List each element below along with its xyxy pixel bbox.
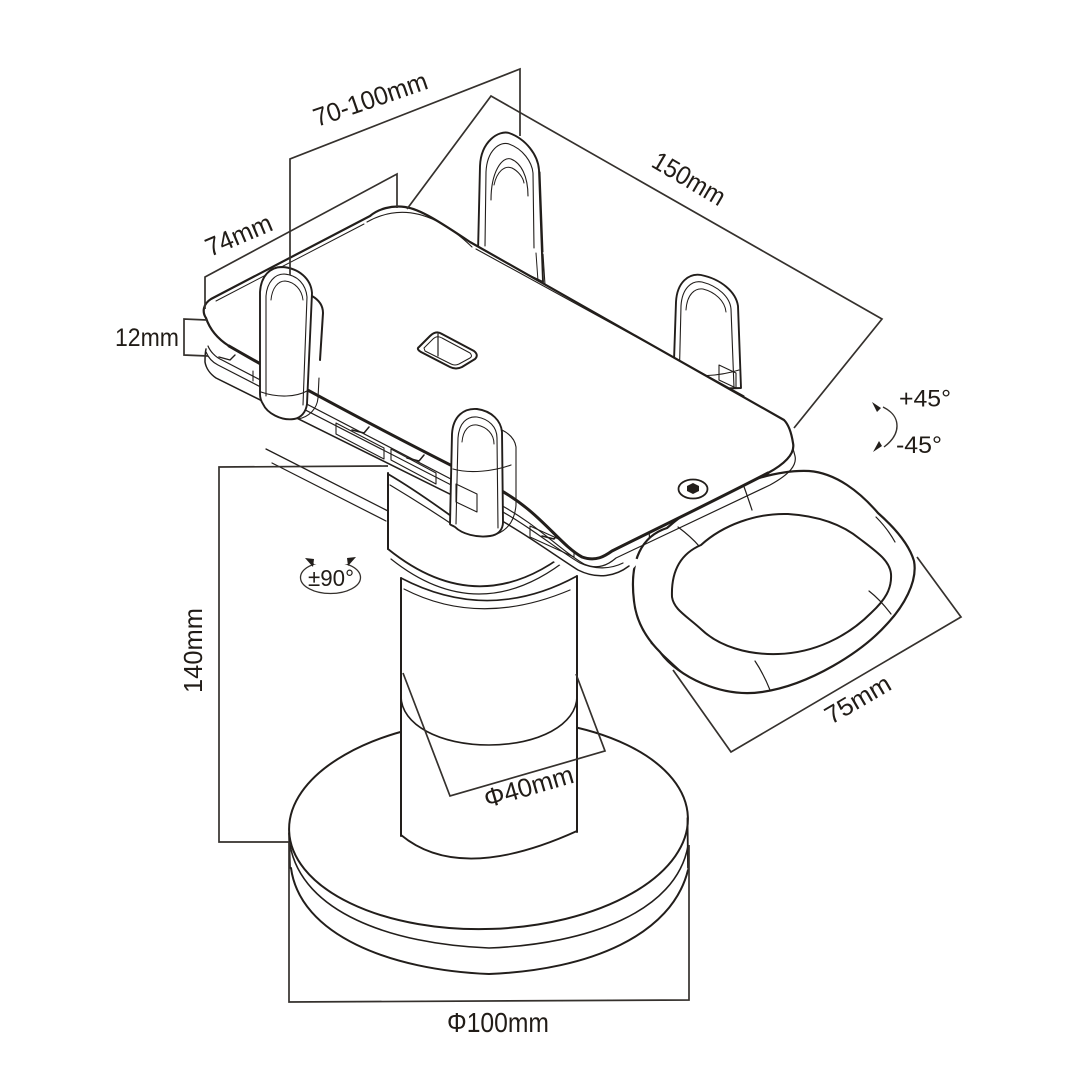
svg-text:+45°: +45° [899, 386, 951, 413]
svg-text:±90°: ±90° [308, 565, 354, 591]
svg-text:Φ100mm: Φ100mm [447, 1007, 549, 1038]
svg-text:12mm: 12mm [115, 324, 179, 352]
svg-text:-45°: -45° [896, 432, 942, 459]
svg-text:140mm: 140mm [178, 608, 208, 693]
